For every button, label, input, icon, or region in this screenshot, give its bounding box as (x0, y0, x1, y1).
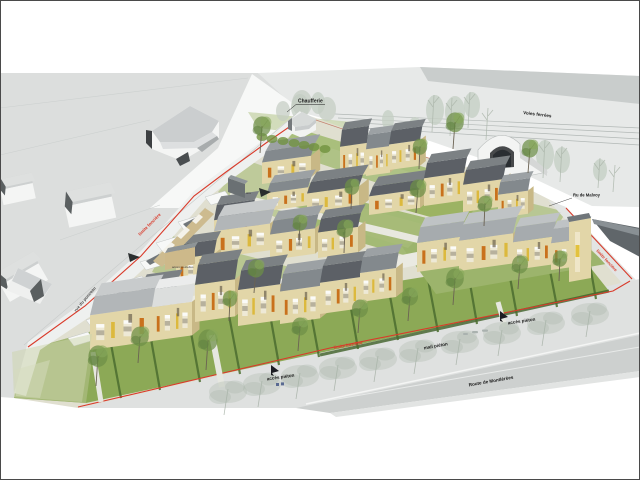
svg-text:aire: aire (246, 191, 251, 195)
svg-text:Ru de Malvoy: Ru de Malvoy (573, 193, 601, 198)
svg-text:Chaufferie: Chaufferie (298, 99, 323, 105)
svg-text:acces poubelles: acces poubelles (172, 265, 194, 269)
